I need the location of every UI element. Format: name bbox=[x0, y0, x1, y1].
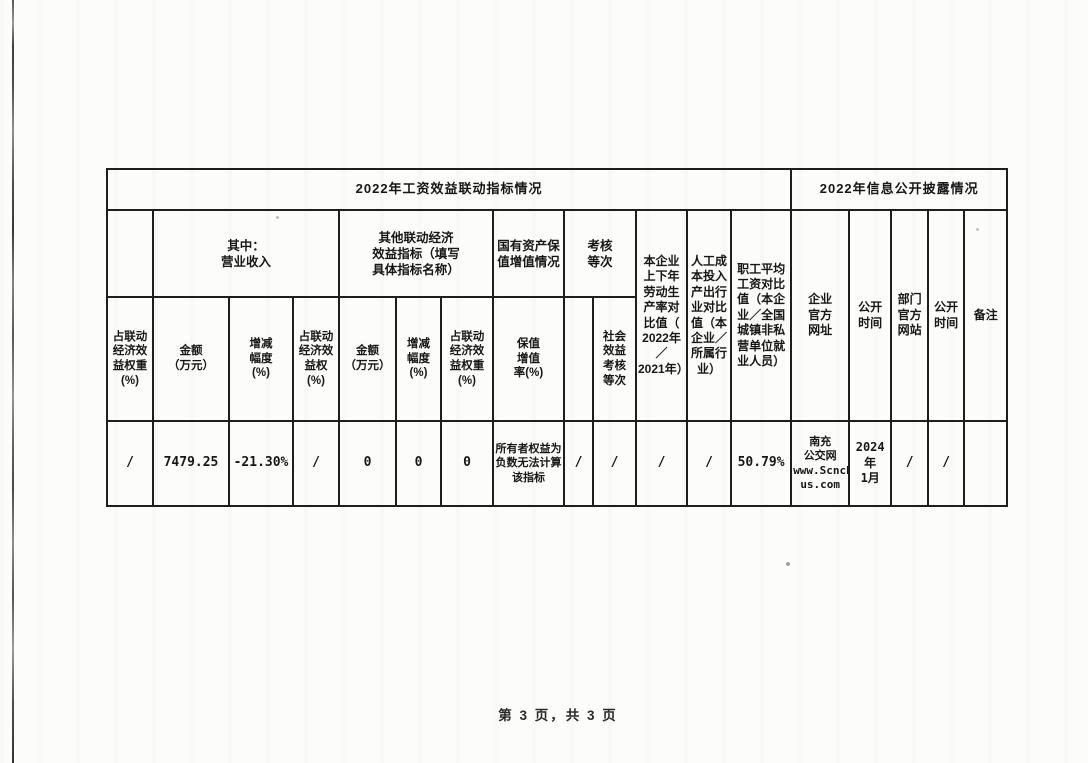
value-labor-cost-io-ratio: / bbox=[687, 421, 731, 506]
subcol-revenue-weight: 占联动 经济效 益权 (%) bbox=[293, 297, 339, 421]
group-other-linked-indicators: 其他联动经济 效益指标（填写 具体指标名称） bbox=[339, 210, 493, 297]
subcol-linked-benefit-weight: 占联动 经济效 益权重 (%) bbox=[107, 297, 153, 421]
group-operating-revenue: 其中： 营业收入 bbox=[153, 210, 339, 297]
subcol-social-benefit-grade: 社会 效益 考核 等次 bbox=[593, 297, 636, 421]
subcol-other-change: 增减 幅度 (%) bbox=[396, 297, 441, 421]
section-title-info-disclosure: 2022年信息公开披露情况 bbox=[791, 169, 1007, 210]
subcol-revenue-amount: 金额 （万元） bbox=[153, 297, 229, 421]
subcol-preservation-rate: 保值 增值 率(%) bbox=[493, 297, 564, 421]
value-publish-time-2: / bbox=[928, 421, 964, 506]
group-blank-cell bbox=[107, 210, 153, 297]
col-labor-productivity-ratio: 本企业 上下年 劳动生 产率对 比值（ 2022年／ 2021年） bbox=[636, 210, 687, 421]
scan-speck bbox=[786, 562, 790, 566]
group-state-asset-preservation: 国有资产保 值增值情况 bbox=[493, 210, 564, 297]
value-other-weight: 0 bbox=[441, 421, 493, 506]
subcol-assessment-blank bbox=[564, 297, 593, 421]
col-labor-cost-io-ratio: 人工成 本投入 产出行 业对比 值（本 企业／ 所属行 业） bbox=[687, 210, 731, 421]
value-revenue-weight: / bbox=[293, 421, 339, 506]
value-company-website: 南充 公交网 www.Scncb us.com bbox=[791, 421, 849, 506]
subcol-other-amount: 金额 （万元） bbox=[339, 297, 396, 421]
value-other-change: 0 bbox=[396, 421, 441, 506]
scan-artifact-line bbox=[12, 0, 14, 763]
value-publish-time-1: 2024年 1月 bbox=[849, 421, 891, 506]
subcol-other-weight: 占联动 经济效 益权重 (%) bbox=[441, 297, 493, 421]
value-assessment-grade: / bbox=[564, 421, 593, 506]
value-revenue-amount: 7479.25 bbox=[153, 421, 229, 506]
wage-benefit-linkage-table: 2022年工资效益联动指标情况 2022年信息公开披露情况 其中： 营业收入 其… bbox=[106, 168, 1008, 507]
scanned-report-page: 2022年工资效益联动指标情况 2022年信息公开披露情况 其中： 营业收入 其… bbox=[0, 0, 1088, 763]
value-labor-productivity-ratio: / bbox=[636, 421, 687, 506]
value-linked-benefit-weight: / bbox=[107, 421, 153, 506]
section-title-wage-linkage: 2022年工资效益联动指标情况 bbox=[107, 169, 791, 210]
col-dept-website: 部门 官方 网站 bbox=[891, 210, 928, 421]
value-dept-website: / bbox=[891, 421, 928, 506]
value-remarks bbox=[964, 421, 1007, 506]
page-number-footer: 第 3 页，共 3 页 bbox=[14, 704, 1088, 724]
col-publish-time-2: 公开 时间 bbox=[928, 210, 964, 421]
col-avg-wage-ratio: 职工平均 工资对比 值（本企 业／全国 城镇非私 营单位就 业人员） bbox=[731, 210, 791, 421]
group-assessment-grade: 考核 等次 bbox=[564, 210, 636, 297]
col-company-website: 企业 官方 网址 bbox=[791, 210, 849, 421]
value-preservation-rate: 所有者权益为 负数无法计算 该指标 bbox=[493, 421, 564, 506]
col-publish-time-1: 公开 时间 bbox=[849, 210, 891, 421]
value-social-benefit-grade: / bbox=[593, 421, 636, 506]
value-other-amount: 0 bbox=[339, 421, 396, 506]
value-avg-wage-ratio: 50.79% bbox=[731, 421, 791, 506]
value-revenue-change: -21.30% bbox=[229, 421, 293, 506]
col-remarks: 备注 bbox=[964, 210, 1007, 421]
subcol-revenue-change: 增减 幅度 (%) bbox=[229, 297, 293, 421]
